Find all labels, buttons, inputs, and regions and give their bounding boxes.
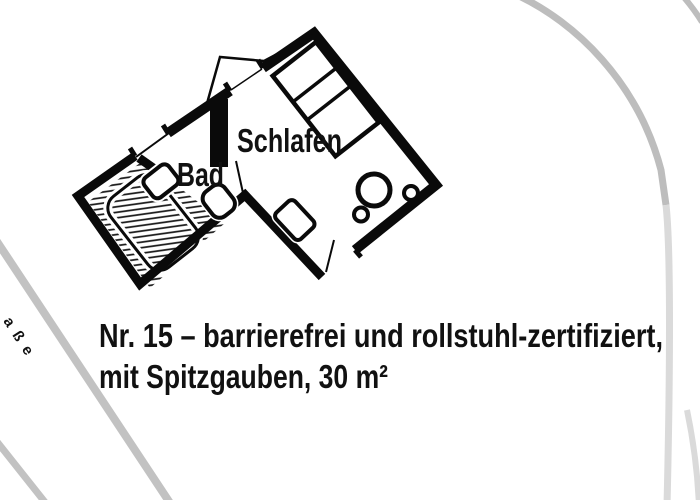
street-curve-right-lower: [666, 205, 670, 500]
caption-line-2: mit Spitzgauben, 30 m²: [99, 358, 388, 395]
stool: [404, 186, 418, 200]
site-plan-page: aße: [0, 0, 700, 500]
room-label-bad: Bad: [177, 156, 224, 193]
caption-line-1: Nr. 15 – barrierefrei und rollstuhl-zert…: [99, 317, 663, 354]
room-label-schlafen: Schlafen: [237, 122, 342, 159]
round-table: [358, 174, 390, 206]
floor-plan-canvas: aße: [0, 0, 700, 500]
stool: [354, 208, 368, 222]
